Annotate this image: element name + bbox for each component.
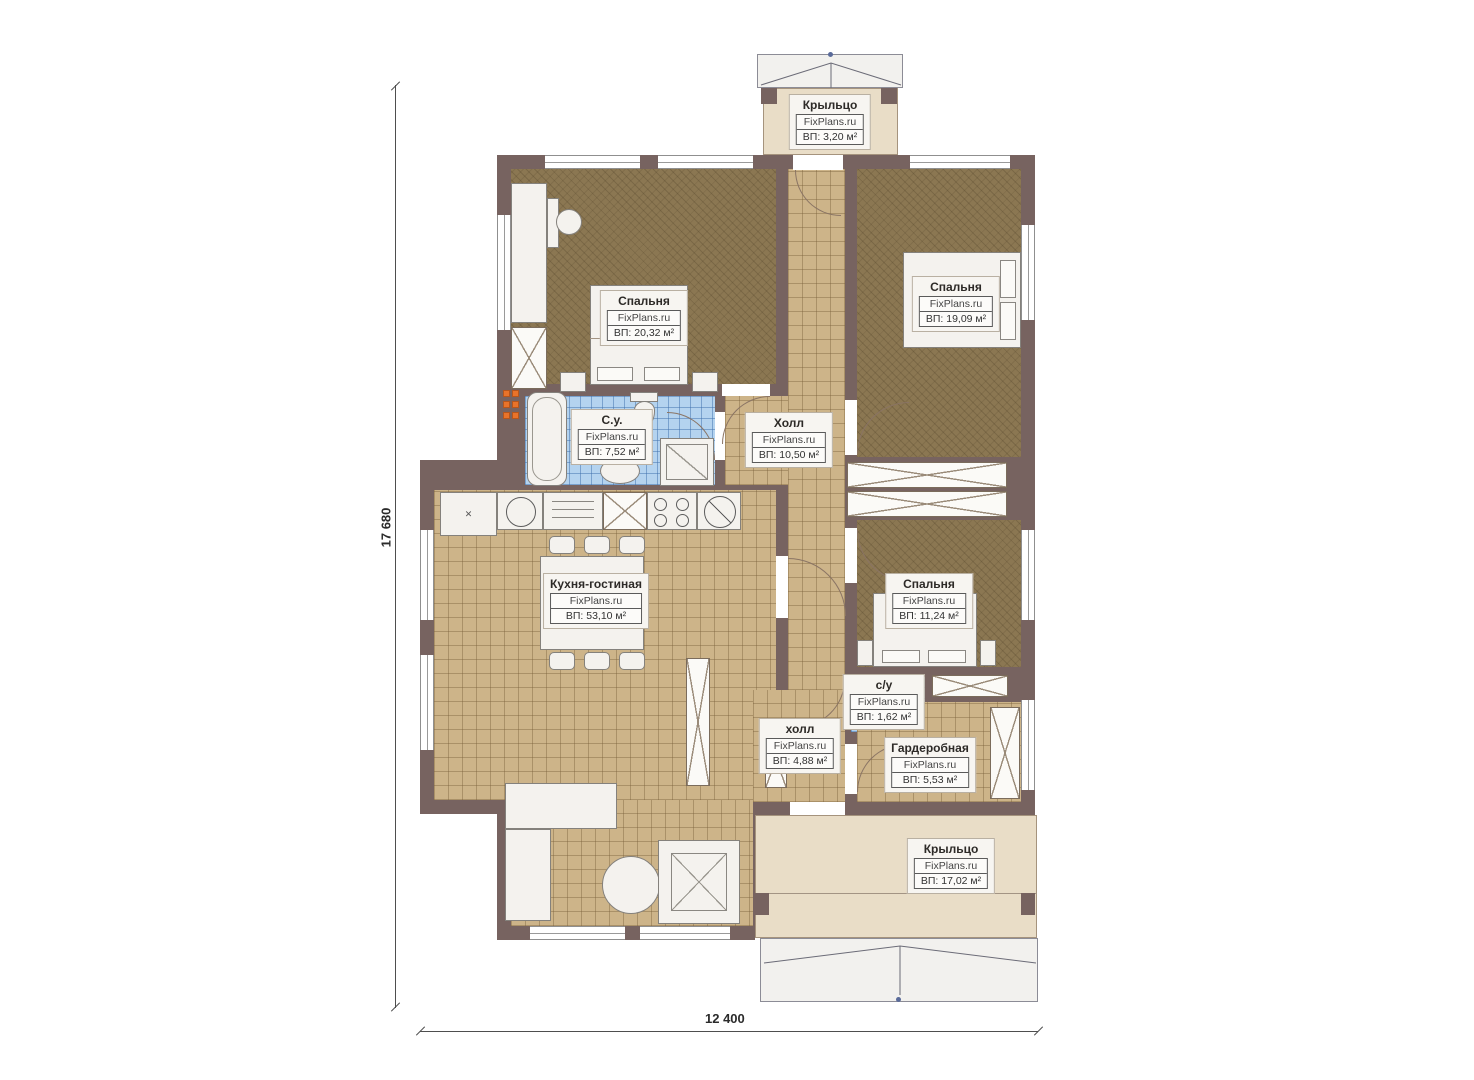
sofa bbox=[505, 783, 617, 829]
room-area: ВП: 17,02 м² bbox=[915, 874, 987, 888]
nightstand bbox=[980, 640, 996, 666]
shelf-unit-x bbox=[686, 658, 710, 786]
shower-cabin bbox=[660, 438, 714, 486]
floor-plan: ✕ Крыльцо FixPlans.ru ВП: 3,20 м² bbox=[0, 0, 1474, 1080]
bathtub bbox=[527, 392, 567, 486]
room-label-bedroom-1: Спальня FixPlans.ru ВП: 20,32 м² bbox=[600, 290, 688, 346]
chair bbox=[619, 652, 645, 670]
room-area: ВП: 1,62 м² bbox=[851, 710, 917, 724]
pillow bbox=[928, 650, 966, 663]
window bbox=[530, 926, 625, 940]
chair bbox=[556, 209, 582, 235]
brand-label: FixPlans.ru bbox=[551, 594, 641, 609]
brand-label: FixPlans.ru bbox=[579, 430, 645, 445]
radiator-icon bbox=[503, 401, 510, 408]
window bbox=[420, 655, 434, 750]
room-name: Крыльцо bbox=[796, 98, 864, 112]
brand-label: FixPlans.ru bbox=[851, 695, 917, 710]
coffee-table bbox=[602, 856, 660, 914]
door-wardrobe bbox=[845, 744, 857, 794]
room-area: ВП: 10,50 м² bbox=[753, 448, 825, 462]
canopy-marker-dot bbox=[896, 997, 901, 1002]
room-name: Спальня bbox=[607, 294, 681, 308]
brand-label: FixPlans.ru bbox=[892, 758, 968, 773]
brand-label: FixPlans.ru bbox=[915, 859, 987, 874]
canopy-marker-dot bbox=[828, 52, 833, 57]
room-label-porch-bottom: Крыльцо FixPlans.ru ВП: 17,02 м² bbox=[907, 838, 995, 894]
brand-label: FixPlans.ru bbox=[767, 739, 833, 754]
dimension-width-label: 12 400 bbox=[705, 1011, 745, 1026]
window bbox=[1021, 225, 1035, 320]
room-label-kitchen-living: Кухня-гостиная FixPlans.ru ВП: 53,10 м² bbox=[543, 573, 649, 629]
porch-bottom-steps bbox=[760, 938, 1038, 1002]
room-label-wc: с/у FixPlans.ru ВП: 1,62 м² bbox=[843, 674, 925, 730]
chair bbox=[584, 652, 610, 670]
porch-column bbox=[761, 88, 777, 104]
window bbox=[420, 530, 434, 620]
room-area: ВП: 19,09 м² bbox=[920, 312, 992, 326]
dimension-height-label: 17 680 bbox=[378, 508, 393, 548]
chair bbox=[619, 536, 645, 554]
door-kitchen bbox=[776, 556, 788, 618]
kitchen-cabinet-x bbox=[603, 492, 647, 530]
fireplace bbox=[658, 840, 740, 924]
closet bbox=[511, 183, 547, 323]
pillow bbox=[882, 650, 920, 663]
pillow bbox=[644, 367, 680, 381]
closet-x bbox=[847, 462, 1007, 488]
porch-column bbox=[1021, 893, 1035, 915]
closet-x bbox=[847, 491, 1007, 517]
brand-label: FixPlans.ru bbox=[797, 115, 863, 130]
door-back-entrance bbox=[790, 802, 845, 815]
closet-x bbox=[511, 327, 547, 389]
room-area: ВП: 3,20 м² bbox=[797, 130, 863, 144]
room-label-wardrobe: Гардеробная FixPlans.ru ВП: 5,53 м² bbox=[884, 737, 976, 793]
window bbox=[658, 155, 753, 169]
room-name: Спальня bbox=[919, 280, 993, 294]
door-main-entrance bbox=[793, 155, 843, 170]
room-area: ВП: 5,53 м² bbox=[892, 773, 968, 787]
nightstand bbox=[857, 640, 873, 666]
room-area: ВП: 7,52 м² bbox=[579, 445, 645, 459]
room-name: С.у. bbox=[578, 413, 646, 427]
nightstand bbox=[560, 372, 586, 392]
sofa bbox=[505, 829, 551, 921]
window bbox=[1021, 700, 1035, 790]
room-label-hall: Холл FixPlans.ru ВП: 10,50 м² bbox=[745, 412, 833, 468]
brand-label: FixPlans.ru bbox=[920, 297, 992, 312]
porch-column bbox=[755, 893, 769, 915]
nightstand bbox=[692, 372, 718, 392]
room-name: Холл bbox=[752, 416, 826, 430]
room-name: Кухня-гостиная bbox=[550, 577, 642, 591]
window bbox=[910, 155, 1010, 169]
pillow bbox=[1000, 260, 1016, 298]
room-name: Спальня bbox=[892, 577, 966, 591]
window bbox=[640, 926, 730, 940]
porch-column bbox=[881, 88, 897, 104]
room-name: Крыльцо bbox=[914, 842, 988, 856]
chair bbox=[549, 536, 575, 554]
window bbox=[497, 215, 511, 330]
room-label-bedroom-2: Спальня FixPlans.ru ВП: 19,09 м² bbox=[912, 276, 1000, 332]
room-area: ВП: 53,10 м² bbox=[551, 609, 641, 623]
pillow bbox=[1000, 302, 1016, 340]
porch-top-steps bbox=[757, 54, 903, 88]
radiator-icon bbox=[512, 412, 519, 419]
room-name: холл bbox=[766, 722, 834, 736]
room-label-bathroom: С.у. FixPlans.ru ВП: 7,52 м² bbox=[571, 409, 653, 465]
stove bbox=[647, 492, 697, 530]
room-area: ВП: 4,88 м² bbox=[767, 754, 833, 768]
door-bedroom-3 bbox=[845, 528, 857, 583]
room-area: ВП: 11,24 м² bbox=[893, 609, 965, 623]
room-label-porch-top: Крыльцо FixPlans.ru ВП: 3,20 м² bbox=[789, 94, 871, 150]
brand-label: FixPlans.ru bbox=[753, 433, 825, 448]
kitchen-cabinet bbox=[543, 492, 603, 530]
room-name: Гардеробная bbox=[891, 741, 969, 755]
room-label-hall-lower: холл FixPlans.ru ВП: 4,88 м² bbox=[759, 718, 841, 774]
door-bedroom-2 bbox=[845, 400, 857, 455]
fridge bbox=[697, 492, 741, 530]
chair bbox=[584, 536, 610, 554]
door-bedroom-1 bbox=[722, 384, 770, 396]
dimension-line-horizontal bbox=[420, 1031, 1038, 1032]
chair bbox=[549, 652, 575, 670]
room-label-bedroom-3: Спальня FixPlans.ru ВП: 11,24 м² bbox=[885, 573, 973, 629]
closet-x bbox=[932, 675, 1008, 697]
pillow bbox=[597, 367, 633, 381]
room-name: с/у bbox=[850, 678, 918, 692]
window bbox=[1021, 530, 1035, 620]
dimension-line-vertical bbox=[395, 85, 396, 1008]
radiator-icon bbox=[503, 412, 510, 419]
radiator-icon bbox=[512, 401, 519, 408]
radiator-icon bbox=[503, 390, 510, 397]
radiator-icon bbox=[512, 390, 519, 397]
corner-cabinet: ✕ bbox=[440, 492, 497, 536]
window bbox=[545, 155, 640, 169]
kitchen-sink-unit bbox=[497, 492, 543, 530]
room-area: ВП: 20,32 м² bbox=[608, 326, 680, 340]
brand-label: FixPlans.ru bbox=[893, 594, 965, 609]
brand-label: FixPlans.ru bbox=[608, 311, 680, 326]
closet-x bbox=[990, 707, 1020, 799]
